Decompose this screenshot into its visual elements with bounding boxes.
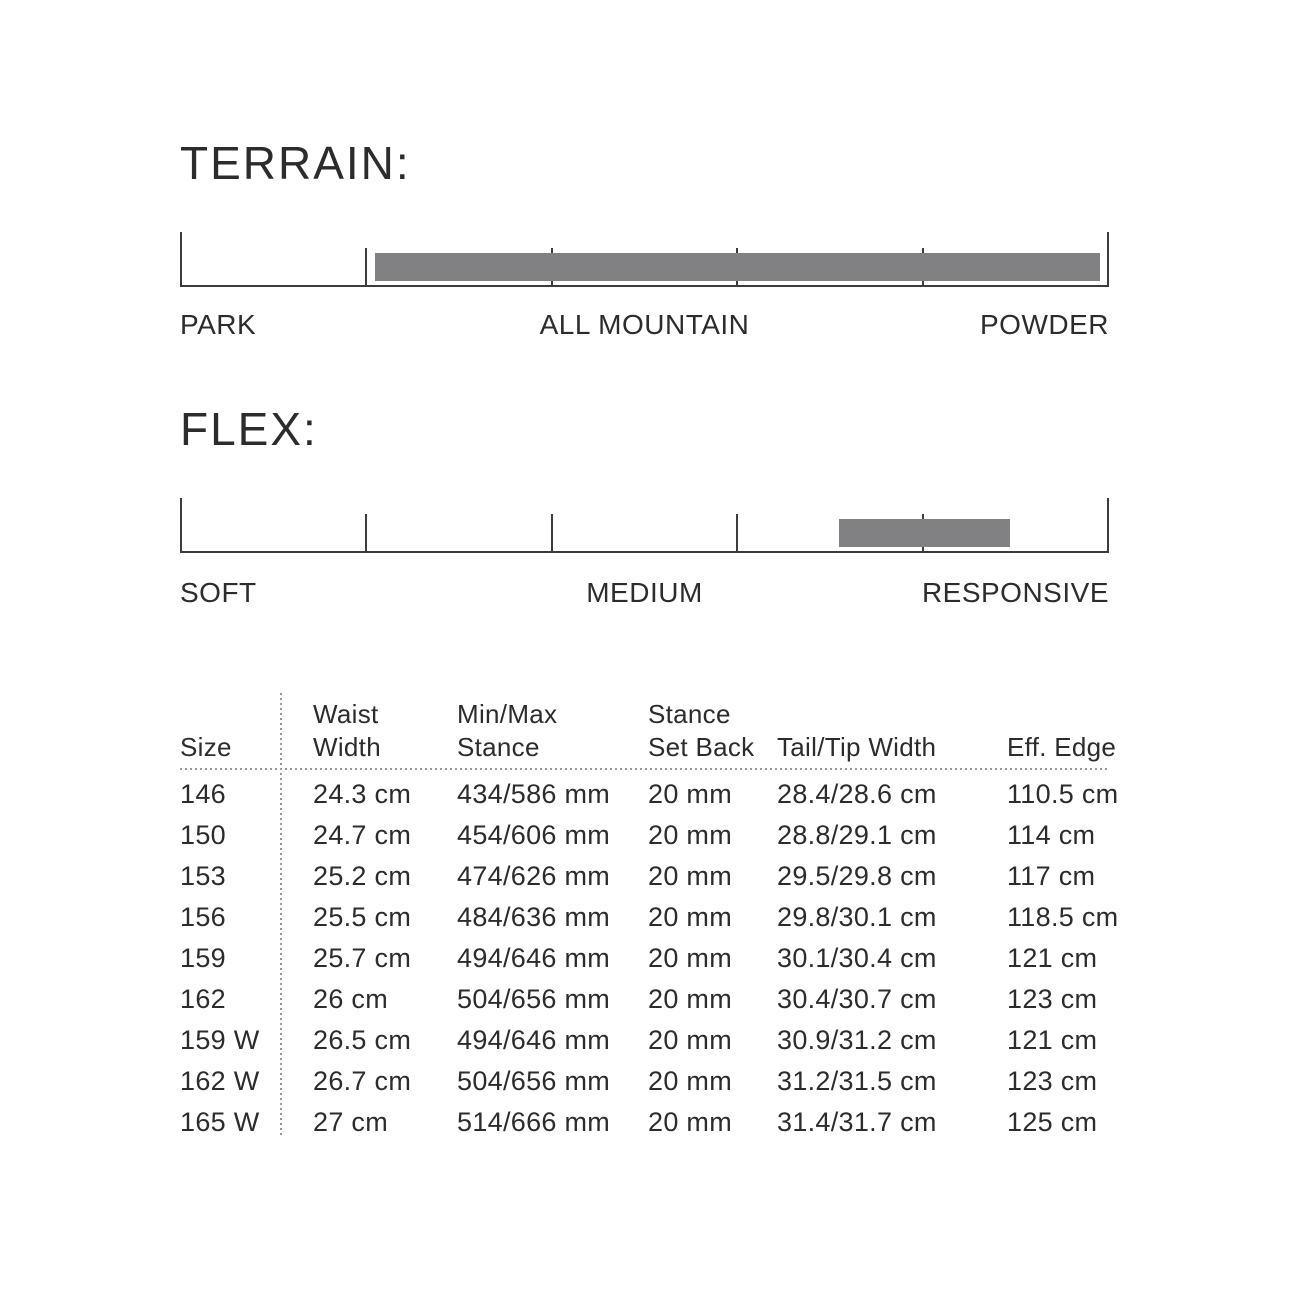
terrain-scale [180,232,1109,287]
terrain-rating-bar [375,253,1100,281]
table-cell: 123 cm [1007,1066,1110,1097]
table-cell: 150 [180,820,313,851]
table-cell: 28.4/28.6 cm [777,779,1007,810]
column-header-line: Eff. Edge [1007,731,1110,764]
flex-axis-line [180,551,1109,553]
table-cell: 20 mm [648,861,777,892]
table-cell: 31.2/31.5 cm [777,1066,1007,1097]
table-cell: 20 mm [648,1107,777,1138]
table-cell: 24.3 cm [313,779,457,810]
table-cell: 20 mm [648,943,777,974]
table-cell: 514/666 mm [457,1107,648,1138]
table-cell: 165 W [180,1107,313,1138]
table-header-divider [180,768,1110,770]
table-cell: 20 mm [648,820,777,851]
scale-tick [736,514,738,553]
table-cell: 159 [180,943,313,974]
table-cell: 494/646 mm [457,1025,648,1056]
table-cell: 117 cm [1007,861,1110,892]
table-cell: 26 cm [313,984,457,1015]
table-row: 15325.2 cm474/626 mm20 mm29.5/29.8 cm117… [180,856,1110,897]
scale-tick [551,514,553,553]
column-header-line: Stance [457,731,648,764]
table-cell: 20 mm [648,902,777,933]
table-cell: 153 [180,861,313,892]
column-header-line: Tail/Tip Width [777,731,1007,764]
column-header: Min/MaxStance [457,698,648,764]
size-spec-table: SizeWaistWidthMin/MaxStanceStanceSet Bac… [180,688,1110,1143]
table-vertical-divider [280,693,282,1137]
table-cell: 474/626 mm [457,861,648,892]
column-header-line: Set Back [648,731,777,764]
terrain-labels: PARK ALL MOUNTAIN POWDER [180,310,1109,344]
table-cell: 28.8/29.1 cm [777,820,1007,851]
table-cell: 26.7 cm [313,1066,457,1097]
table-cell: 20 mm [648,1066,777,1097]
table-row: 14624.3 cm434/586 mm20 mm28.4/28.6 cm110… [180,774,1110,815]
table-cell: 484/636 mm [457,902,648,933]
terrain-title: TERRAIN: [180,140,411,186]
flex-rating-bar [839,519,1010,547]
table-cell: 146 [180,779,313,810]
flex-label-soft: SOFT [180,578,257,609]
flex-label-responsive: RESPONSIVE [922,578,1109,609]
snowboard-spec-sheet: TERRAIN: PARK ALL MOUNTAIN POWDER FLEX: … [0,0,1290,1290]
table-cell: 434/586 mm [457,779,648,810]
table-cell: 26.5 cm [313,1025,457,1056]
table-cell: 24.7 cm [313,820,457,851]
table-cell: 125 cm [1007,1107,1110,1138]
table-cell: 110.5 cm [1007,779,1110,810]
table-cell: 30.9/31.2 cm [777,1025,1007,1056]
scale-tick [365,514,367,553]
column-header-line: Min/Max [457,698,648,731]
table-cell: 25.2 cm [313,861,457,892]
table-cell: 156 [180,902,313,933]
table-cell: 123 cm [1007,984,1110,1015]
table-cell: 27 cm [313,1107,457,1138]
table-cell: 25.5 cm [313,902,457,933]
scale-tick [180,498,182,553]
flex-labels: SOFT MEDIUM RESPONSIVE [180,578,1109,612]
table-cell: 454/606 mm [457,820,648,851]
scale-tick [1107,498,1109,553]
table-cell: 162 W [180,1066,313,1097]
column-header: Size [180,731,313,764]
scale-tick [180,232,182,287]
scale-tick [365,248,367,287]
column-header: StanceSet Back [648,698,777,764]
terrain-label-all-mountain: ALL MOUNTAIN [540,310,750,341]
table-row: 16226 cm504/656 mm20 mm30.4/30.7 cm123 c… [180,979,1110,1020]
flex-title: FLEX: [180,406,318,452]
table-cell: 504/656 mm [457,1066,648,1097]
table-row: 15024.7 cm454/606 mm20 mm28.8/29.1 cm114… [180,815,1110,856]
scale-tick [1107,232,1109,287]
table-cell: 29.5/29.8 cm [777,861,1007,892]
table-cell: 114 cm [1007,820,1110,851]
column-header-line: Waist [313,698,457,731]
table-cell: 29.8/30.1 cm [777,902,1007,933]
column-header: WaistWidth [313,698,457,764]
table-cell: 504/656 mm [457,984,648,1015]
table-cell: 30.4/30.7 cm [777,984,1007,1015]
table-cell: 20 mm [648,1025,777,1056]
column-header: Eff. Edge [1007,731,1110,764]
table-cell: 121 cm [1007,943,1110,974]
table-cell: 20 mm [648,779,777,810]
table-body: 14624.3 cm434/586 mm20 mm28.4/28.6 cm110… [180,774,1110,1143]
table-cell: 30.1/30.4 cm [777,943,1007,974]
table-row: 162 W26.7 cm504/656 mm20 mm31.2/31.5 cm1… [180,1061,1110,1102]
flex-label-medium: MEDIUM [586,578,703,609]
table-row: 159 W26.5 cm494/646 mm20 mm30.9/31.2 cm1… [180,1020,1110,1061]
table-cell: 31.4/31.7 cm [777,1107,1007,1138]
flex-scale [180,498,1109,553]
table-cell: 118.5 cm [1007,902,1110,933]
column-header-line: Stance [648,698,777,731]
table-row: 15625.5 cm484/636 mm20 mm29.8/30.1 cm118… [180,897,1110,938]
column-header-line: Width [313,731,457,764]
terrain-label-powder: POWDER [980,310,1109,341]
table-cell: 121 cm [1007,1025,1110,1056]
column-header-line: Size [180,731,313,764]
table-row: 165 W27 cm514/666 mm20 mm31.4/31.7 cm125… [180,1102,1110,1143]
table-cell: 162 [180,984,313,1015]
table-cell: 159 W [180,1025,313,1056]
column-header: Tail/Tip Width [777,731,1007,764]
table-row: 15925.7 cm494/646 mm20 mm30.1/30.4 cm121… [180,938,1110,979]
terrain-axis-line [180,285,1109,287]
terrain-label-park: PARK [180,310,256,341]
table-cell: 20 mm [648,984,777,1015]
table-cell: 25.7 cm [313,943,457,974]
table-header-row: SizeWaistWidthMin/MaxStanceStanceSet Bac… [180,688,1110,764]
table-cell: 494/646 mm [457,943,648,974]
